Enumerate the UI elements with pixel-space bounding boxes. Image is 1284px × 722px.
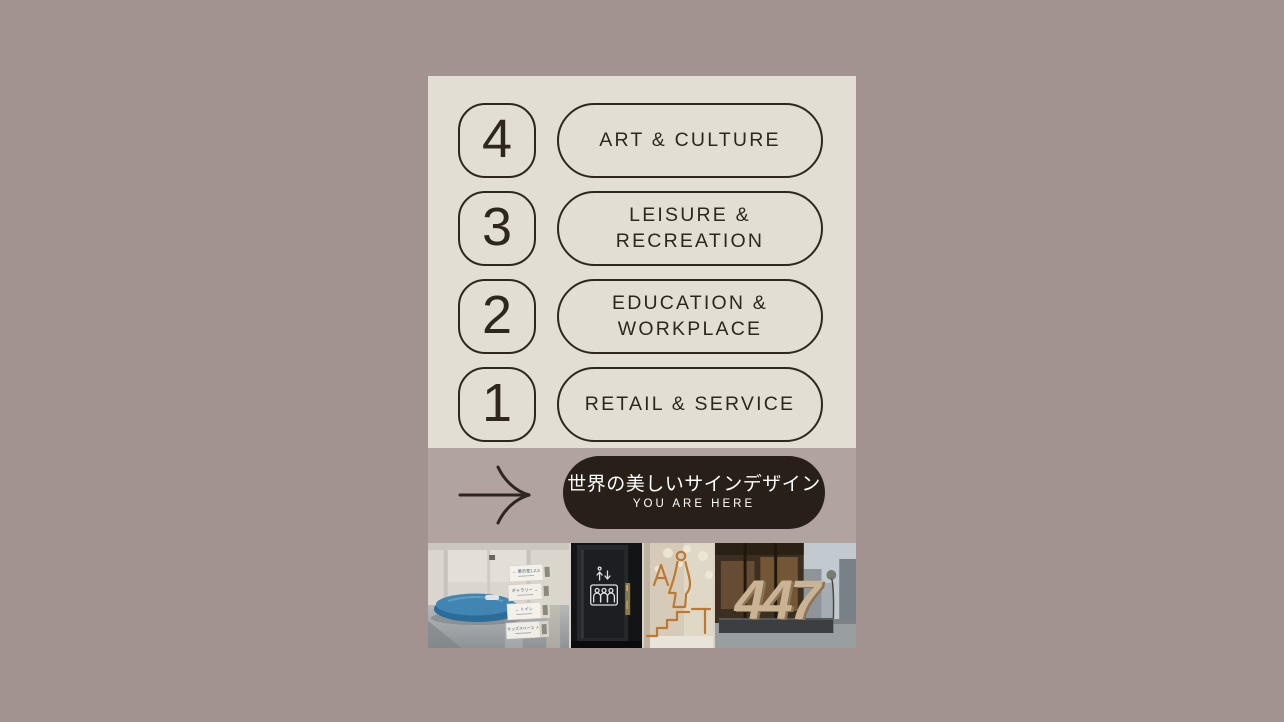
you-are-here-label: YOU ARE HERE	[633, 499, 755, 511]
elevator-call-panel	[625, 583, 630, 615]
floor-row: 3 LEISURE & RECREATION	[428, 191, 856, 266]
floor-category-label: EDUCATION & WORKPLACE	[612, 291, 768, 342]
book-cover-poster: 4 ART & CULTURE 3 LEISURE & RECREATION 2…	[428, 76, 856, 648]
sculpture-number-text: 447 447	[734, 569, 827, 632]
right-arrow-icon	[458, 464, 532, 526]
page-background: 4 ART & CULTURE 3 LEISURE & RECREATION 2…	[0, 0, 1284, 722]
photo-stairs-pictogram	[644, 543, 713, 648]
floor-category-pill: EDUCATION & WORKPLACE	[557, 279, 823, 354]
floor-row: 4 ART & CULTURE	[428, 103, 856, 178]
floor-number-badge: 3	[458, 191, 536, 266]
photo-elevator-door	[571, 543, 642, 648]
floor-category-pill: ART & CULTURE	[557, 103, 823, 178]
floor-row: 2 EDUCATION & WORKPLACE	[428, 279, 856, 354]
wall-sign	[489, 555, 495, 560]
floor-number-badge: 1	[458, 367, 536, 442]
floor-row: 1 RETAIL & SERVICE	[428, 367, 856, 442]
floor-category-label: ART & CULTURE	[599, 128, 780, 153]
floor-number-badge: 2	[458, 279, 536, 354]
callout-band: 世界の美しいサインデザイン YOU ARE HERE	[428, 448, 856, 543]
book-title: 世界の美しいサインデザイン	[567, 475, 821, 494]
photo-lobby-signage: ← 展示室1,2,3 ギャラリー →	[428, 543, 569, 648]
floor-category-label: LEISURE & RECREATION	[616, 203, 764, 254]
floor-number-badge: 4	[458, 103, 536, 178]
sign-line-text: ← トイレ	[515, 606, 533, 612]
title-pill: 世界の美しいサインデザイン YOU ARE HERE	[563, 456, 825, 529]
floor-directory: 4 ART & CULTURE 3 LEISURE & RECREATION 2…	[428, 76, 856, 448]
svg-text:447: 447	[734, 569, 824, 631]
photo-strip: ← 展示室1,2,3 ギャラリー →	[428, 543, 856, 648]
floor-category-pill: RETAIL & SERVICE	[557, 367, 823, 442]
photo-number-sculpture: 447 447	[715, 543, 856, 648]
floor-category-pill: LEISURE & RECREATION	[557, 191, 823, 266]
floor-category-label: RETAIL & SERVICE	[585, 392, 795, 417]
